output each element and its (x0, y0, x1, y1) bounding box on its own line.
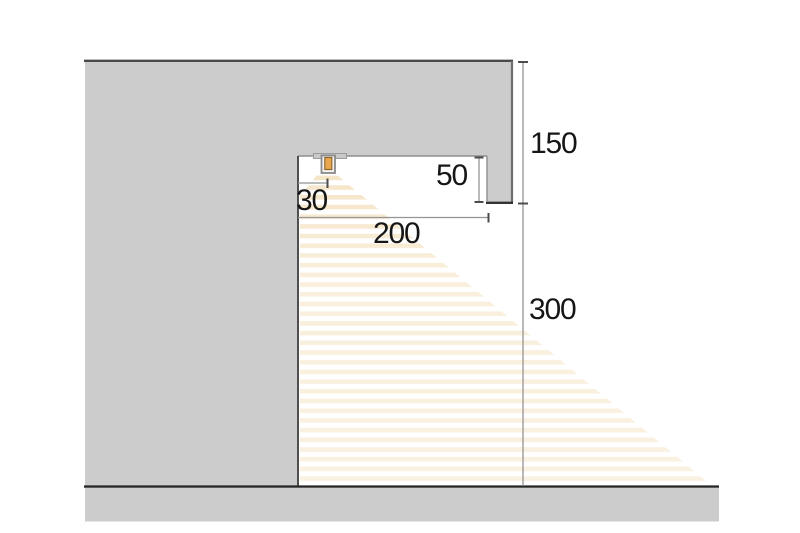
cove-lighting-diagram: 150 50 30 200 300 (0, 0, 800, 533)
led-core (325, 158, 332, 170)
led-strip-icon (314, 154, 347, 174)
dimension-label-150: 150 (530, 128, 576, 160)
dimension-label-30: 30 (296, 185, 327, 217)
diagram-canvas (0, 0, 800, 533)
dimension-label-300: 300 (529, 294, 575, 326)
dimension-label-200: 200 (373, 218, 419, 250)
light-beam-fade (300, 165, 712, 486)
floor-slab (85, 488, 719, 522)
dimension-label-50: 50 (436, 160, 467, 192)
